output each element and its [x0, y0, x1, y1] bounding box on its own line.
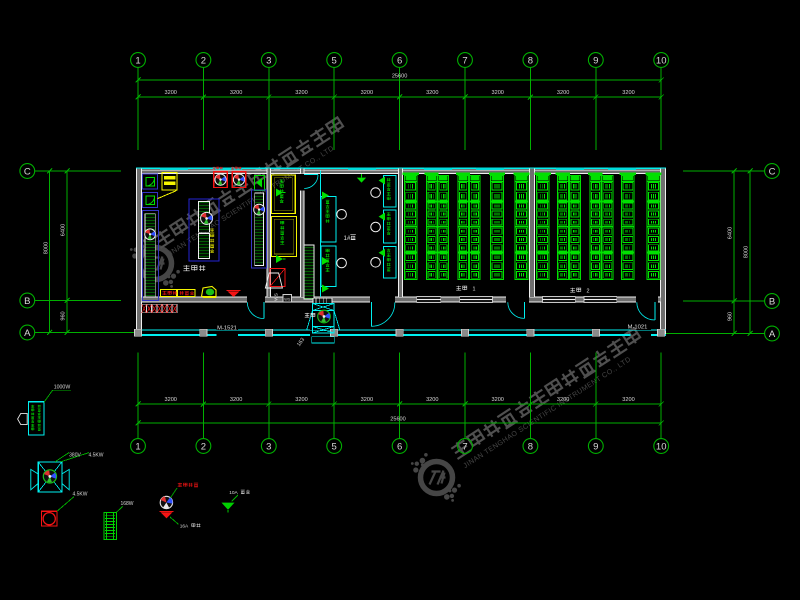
svg-text:6: 6	[397, 441, 402, 452]
svg-text:3: 3	[266, 55, 271, 66]
svg-text:WS: WS	[284, 298, 291, 302]
svg-text:6400: 6400	[61, 224, 67, 236]
svg-text:B: B	[769, 296, 775, 307]
svg-text:3200: 3200	[491, 90, 503, 96]
svg-text:8: 8	[528, 441, 533, 452]
svg-text:4.5KW: 4.5KW	[72, 491, 87, 497]
svg-text:M-1021: M-1021	[628, 324, 648, 330]
svg-text:2: 2	[587, 289, 590, 295]
svg-text:B: B	[24, 296, 30, 307]
svg-text:7: 7	[462, 55, 467, 66]
svg-text:168W: 168W	[120, 501, 133, 507]
svg-text:960: 960	[61, 311, 67, 320]
svg-text:3200: 3200	[426, 397, 438, 403]
svg-text:M-1521: M-1521	[217, 325, 237, 331]
svg-text:3: 3	[266, 441, 271, 452]
svg-text:3200: 3200	[557, 397, 569, 403]
svg-text:1: 1	[135, 441, 140, 452]
svg-text:9: 9	[593, 441, 598, 452]
svg-text:3200: 3200	[230, 90, 242, 96]
svg-text:3200: 3200	[361, 397, 373, 403]
svg-text:7: 7	[462, 441, 467, 452]
svg-text:25600: 25600	[390, 416, 406, 422]
svg-text:8000: 8000	[44, 242, 50, 254]
svg-text:C: C	[24, 166, 31, 177]
svg-text:3200: 3200	[164, 90, 176, 96]
svg-text:380V: 380V	[69, 452, 81, 458]
svg-text:3200: 3200	[164, 397, 176, 403]
svg-text:3200: 3200	[426, 90, 438, 96]
svg-text:25600: 25600	[392, 73, 408, 79]
svg-text:2: 2	[201, 441, 206, 452]
svg-text:6: 6	[397, 55, 402, 66]
svg-text:3200: 3200	[361, 90, 373, 96]
svg-text:2: 2	[201, 55, 206, 66]
svg-text:3200: 3200	[230, 397, 242, 403]
svg-text:5: 5	[332, 55, 337, 66]
svg-text:10: 10	[656, 55, 667, 66]
svg-text:3200: 3200	[295, 90, 307, 96]
svg-text:10: 10	[656, 441, 667, 452]
svg-text:1: 1	[135, 55, 140, 66]
svg-text:8: 8	[528, 55, 533, 66]
svg-text:6400: 6400	[728, 227, 734, 239]
svg-text:WS: WS	[274, 293, 280, 301]
svg-text:3200: 3200	[295, 397, 307, 403]
svg-text:1#: 1#	[344, 235, 351, 242]
svg-text:5: 5	[332, 441, 337, 452]
svg-text:3200: 3200	[622, 397, 634, 403]
svg-text:9: 9	[593, 55, 598, 66]
svg-text:1: 1	[473, 287, 476, 293]
svg-text:3200: 3200	[557, 90, 569, 96]
svg-text:A: A	[24, 328, 31, 339]
svg-text:1000W: 1000W	[54, 385, 71, 391]
svg-text:960: 960	[728, 312, 734, 321]
svg-text:8000: 8000	[744, 246, 750, 258]
svg-text:10A: 10A	[229, 490, 238, 496]
svg-text:3200: 3200	[622, 90, 634, 96]
svg-text:3200: 3200	[491, 397, 503, 403]
svg-text:A: A	[769, 329, 776, 340]
svg-text:16A: 16A	[180, 524, 189, 530]
svg-text:C: C	[769, 166, 776, 177]
svg-text:4.5KW: 4.5KW	[88, 452, 103, 458]
